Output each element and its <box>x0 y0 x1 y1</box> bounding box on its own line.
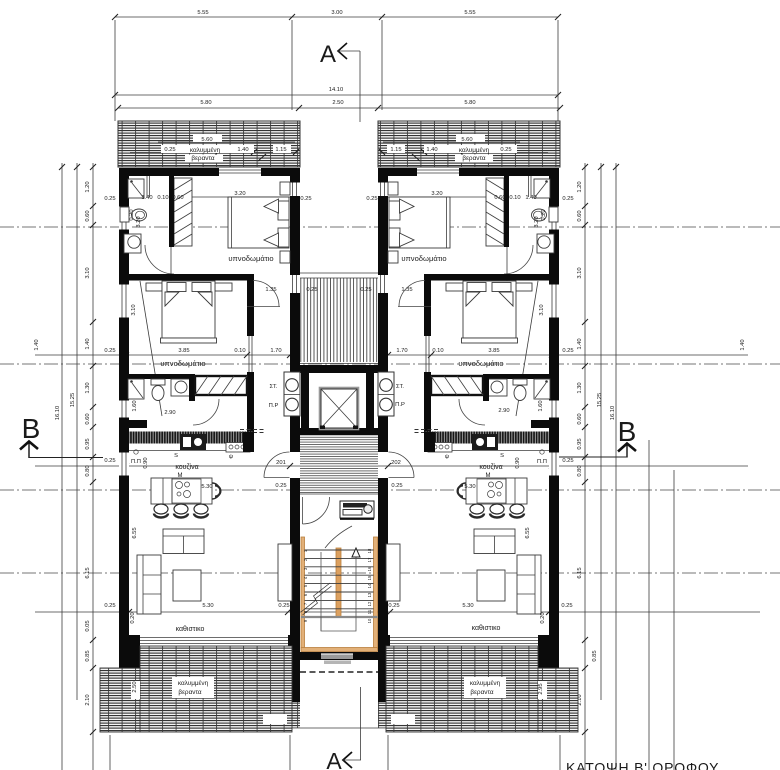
svg-text:0.25: 0.25 <box>275 483 286 489</box>
svg-text:3.10: 3.10 <box>131 304 137 315</box>
svg-text:0.95: 0.95 <box>577 438 583 449</box>
svg-text:S: S <box>174 453 178 459</box>
svg-text:0.60: 0.60 <box>577 413 583 424</box>
svg-text:3.20: 3.20 <box>534 216 540 227</box>
svg-text:A: A <box>326 748 342 770</box>
svg-text:3.10: 3.10 <box>539 304 545 315</box>
svg-text:0.25: 0.25 <box>306 287 317 293</box>
svg-text:5.55: 5.55 <box>464 10 475 16</box>
svg-text:καθιστικο: καθιστικο <box>176 626 205 633</box>
svg-text:1.40: 1.40 <box>740 339 746 350</box>
svg-text:3.20: 3.20 <box>431 191 442 197</box>
svg-text:κουζίνα: κουζίνα <box>175 463 198 471</box>
svg-text:0.20: 0.20 <box>541 209 547 220</box>
svg-text:1.15: 1.15 <box>275 147 286 153</box>
svg-text:2.90: 2.90 <box>164 410 175 416</box>
svg-text:2.90: 2.90 <box>498 408 509 414</box>
svg-text:15: 15 <box>367 575 372 580</box>
svg-text:1.60: 1.60 <box>538 400 544 411</box>
svg-text:0.25: 0.25 <box>360 287 371 293</box>
svg-text:14.10: 14.10 <box>329 87 344 93</box>
svg-text:Π.Ρ: Π.Ρ <box>395 402 405 408</box>
svg-text:0.60: 0.60 <box>172 195 183 201</box>
svg-text:0.20: 0.20 <box>129 209 135 220</box>
svg-text:Π.Ρ: Π.Ρ <box>269 403 279 409</box>
svg-text:5.30: 5.30 <box>201 484 212 490</box>
svg-text:1.40: 1.40 <box>141 195 152 201</box>
svg-text:υπνοδωμάτιο: υπνοδωμάτιο <box>228 254 273 263</box>
svg-text:0.80: 0.80 <box>577 465 583 476</box>
svg-text:3.85: 3.85 <box>178 348 189 354</box>
svg-text:0.25: 0.25 <box>164 147 175 153</box>
svg-text:0.25: 0.25 <box>366 196 377 202</box>
svg-text:0.95: 0.95 <box>85 438 91 449</box>
svg-text:0.60: 0.60 <box>85 210 91 221</box>
svg-text:0.85: 0.85 <box>592 650 598 661</box>
svg-text:2.50: 2.50 <box>332 100 343 106</box>
svg-text:11: 11 <box>367 609 372 614</box>
svg-text:0.25: 0.25 <box>300 196 311 202</box>
svg-text:υπνοδωμάτιο: υπνοδωμάτιο <box>458 359 503 368</box>
svg-text:5.60: 5.60 <box>201 137 212 143</box>
svg-text:1.35: 1.35 <box>265 287 276 293</box>
svg-text:6.15: 6.15 <box>85 567 91 578</box>
svg-text:5.55: 5.55 <box>197 10 208 16</box>
svg-text:1.40: 1.40 <box>237 147 248 153</box>
svg-text:15.25: 15.25 <box>70 393 76 408</box>
svg-text:1.30: 1.30 <box>577 382 583 393</box>
svg-text:0.25: 0.25 <box>104 348 115 354</box>
svg-text:0.80: 0.80 <box>85 465 91 476</box>
svg-text:1.40: 1.40 <box>577 338 583 349</box>
svg-text:A: A <box>320 41 336 68</box>
svg-text:1.35: 1.35 <box>401 287 412 293</box>
svg-text:0.10: 0.10 <box>509 195 520 201</box>
svg-text:13: 13 <box>367 592 372 597</box>
svg-text:1.40: 1.40 <box>34 339 40 350</box>
svg-text:5.60: 5.60 <box>461 137 472 143</box>
svg-text:0.25: 0.25 <box>561 603 572 609</box>
svg-text:6.55: 6.55 <box>525 527 531 538</box>
svg-text:1.15: 1.15 <box>390 147 401 153</box>
svg-text:16.10: 16.10 <box>55 406 61 421</box>
svg-text:0.25: 0.25 <box>500 147 511 153</box>
svg-text:3.20: 3.20 <box>234 191 245 197</box>
svg-text:0.60: 0.60 <box>577 210 583 221</box>
svg-text:κουζίνα: κουζίνα <box>479 463 502 471</box>
svg-text:0.90: 0.90 <box>515 457 521 468</box>
svg-text:1.40: 1.40 <box>85 338 91 349</box>
svg-text:βεραντα: βεραντα <box>470 689 493 696</box>
svg-text:3.00: 3.00 <box>331 10 342 16</box>
svg-text:0.10: 0.10 <box>157 195 168 201</box>
svg-text:ψ: ψ <box>229 454 233 460</box>
svg-text:1.20: 1.20 <box>577 181 583 192</box>
svg-text:καλυμμένη: καλυμμένη <box>470 679 501 687</box>
svg-text:0.25: 0.25 <box>562 458 573 464</box>
svg-text:0.25: 0.25 <box>104 196 115 202</box>
svg-text:5.30: 5.30 <box>464 484 475 490</box>
svg-text:3.20: 3.20 <box>136 216 142 227</box>
svg-text:ΣΤ.: ΣΤ. <box>269 384 277 390</box>
svg-text:0.60: 0.60 <box>494 195 505 201</box>
svg-text:18: 18 <box>367 548 372 553</box>
svg-text:0.10: 0.10 <box>234 348 245 354</box>
svg-text:202: 202 <box>391 460 401 466</box>
svg-text:17: 17 <box>367 557 372 562</box>
svg-text:0.20: 0.20 <box>540 612 546 623</box>
svg-text:201: 201 <box>276 460 286 466</box>
svg-text:0.25: 0.25 <box>388 603 399 609</box>
svg-text:1.20: 1.20 <box>85 181 91 192</box>
svg-text:16.10: 16.10 <box>610 406 616 421</box>
svg-text:5.30: 5.30 <box>462 603 473 609</box>
svg-text:1.40: 1.40 <box>525 195 536 201</box>
svg-text:0.60: 0.60 <box>85 413 91 424</box>
svg-text:0.85: 0.85 <box>85 650 91 661</box>
svg-text:βεραντα: βεραντα <box>178 689 201 696</box>
svg-text:12: 12 <box>367 601 372 606</box>
svg-text:2.10: 2.10 <box>85 694 91 705</box>
svg-text:0.25: 0.25 <box>278 603 289 609</box>
svg-text:3.85: 3.85 <box>488 348 499 354</box>
svg-text:0.25: 0.25 <box>104 458 115 464</box>
svg-text:2.50: 2.50 <box>132 681 138 692</box>
svg-text:2.95: 2.95 <box>538 683 544 694</box>
svg-text:14: 14 <box>367 583 372 588</box>
svg-text:καλυμμένη: καλυμμένη <box>190 146 221 154</box>
svg-text:0.05: 0.05 <box>85 620 91 631</box>
svg-text:καλυμμένη: καλυμμένη <box>459 146 490 154</box>
svg-text:3.10: 3.10 <box>85 267 91 278</box>
svg-text:1.60: 1.60 <box>132 400 138 411</box>
svg-text:10: 10 <box>367 618 372 623</box>
svg-text:0.25: 0.25 <box>391 483 402 489</box>
svg-text:1.70: 1.70 <box>270 348 281 354</box>
svg-text:6.55: 6.55 <box>132 527 138 538</box>
svg-text:ΣΤ.: ΣΤ. <box>396 384 404 390</box>
svg-text:βεραντα: βεραντα <box>462 155 485 162</box>
svg-text:0.25: 0.25 <box>562 196 573 202</box>
svg-text:S: S <box>500 453 504 459</box>
svg-text:M: M <box>178 473 183 479</box>
svg-text:βεραντα: βεραντα <box>191 155 214 162</box>
svg-text:16: 16 <box>367 566 372 571</box>
svg-text:0.90: 0.90 <box>143 457 149 468</box>
svg-text:καθιστικο: καθιστικο <box>472 625 501 632</box>
svg-text:1.40: 1.40 <box>426 147 437 153</box>
svg-text:15.25: 15.25 <box>597 393 603 408</box>
svg-text:0.10: 0.10 <box>432 348 443 354</box>
svg-text:ΚΑΤΟΨΗ Β' ΟΡΟΦΟΥ: ΚΑΤΟΨΗ Β' ΟΡΟΦΟΥ <box>566 760 719 770</box>
svg-text:0.25: 0.25 <box>562 348 573 354</box>
svg-text:υπνοδωμάτιο: υπνοδωμάτιο <box>160 359 205 368</box>
svg-text:5.30: 5.30 <box>202 603 213 609</box>
svg-text:6.15: 6.15 <box>577 567 583 578</box>
svg-text:3.10: 3.10 <box>577 267 583 278</box>
svg-text:Π.Π: Π.Π <box>537 459 547 465</box>
svg-text:υπνοδωμάτιο: υπνοδωμάτιο <box>401 254 446 263</box>
svg-text:Π.Π: Π.Π <box>131 459 141 465</box>
svg-text:5.80: 5.80 <box>464 100 475 106</box>
svg-text:0.25: 0.25 <box>104 603 115 609</box>
svg-text:5.80: 5.80 <box>200 100 211 106</box>
svg-text:1.30: 1.30 <box>85 382 91 393</box>
svg-text:0.20: 0.20 <box>130 612 136 623</box>
svg-text:M: M <box>486 473 491 479</box>
svg-text:ψ: ψ <box>445 454 449 460</box>
svg-text:1.70: 1.70 <box>396 348 407 354</box>
svg-text:B: B <box>22 413 41 444</box>
svg-text:καλυμμένη: καλυμμένη <box>178 679 209 687</box>
